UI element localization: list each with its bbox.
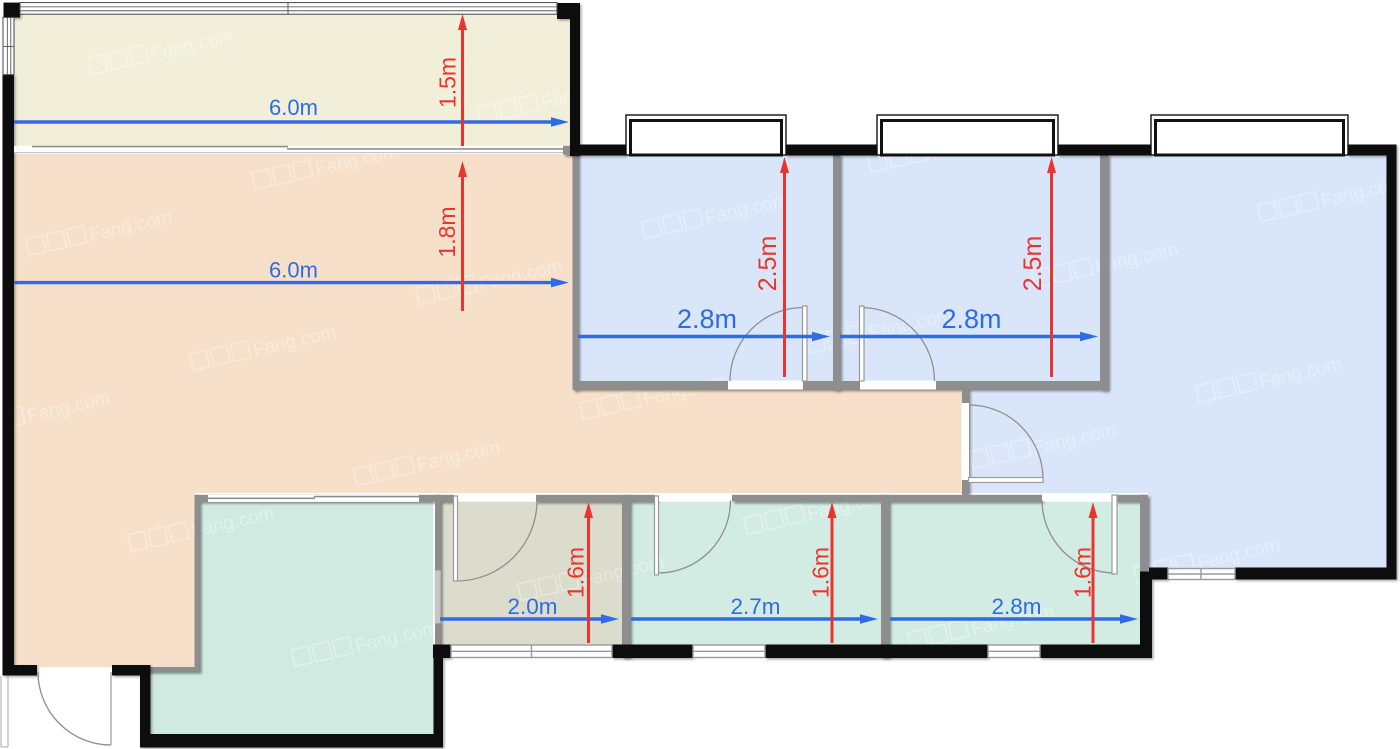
svg-text:2.0m: 2.0m [507, 594, 557, 619]
svg-text:2.7m: 2.7m [730, 594, 780, 619]
svg-text:2.8m: 2.8m [941, 304, 1001, 334]
svg-text:1.8m: 1.8m [434, 206, 460, 257]
svg-text:1.5m: 1.5m [435, 57, 461, 108]
svg-text:1.6m: 1.6m [1070, 547, 1096, 598]
svg-text:6.0m: 6.0m [269, 95, 318, 120]
svg-text:2.8m: 2.8m [991, 594, 1041, 619]
svg-text:2.8m: 2.8m [677, 304, 737, 334]
svg-text:1.6m: 1.6m [563, 547, 589, 598]
svg-text:2.5m: 2.5m [1019, 236, 1047, 292]
svg-text:1.6m: 1.6m [808, 547, 834, 598]
svg-text:6.0m: 6.0m [269, 258, 318, 283]
svg-text:2.5m: 2.5m [754, 236, 782, 292]
